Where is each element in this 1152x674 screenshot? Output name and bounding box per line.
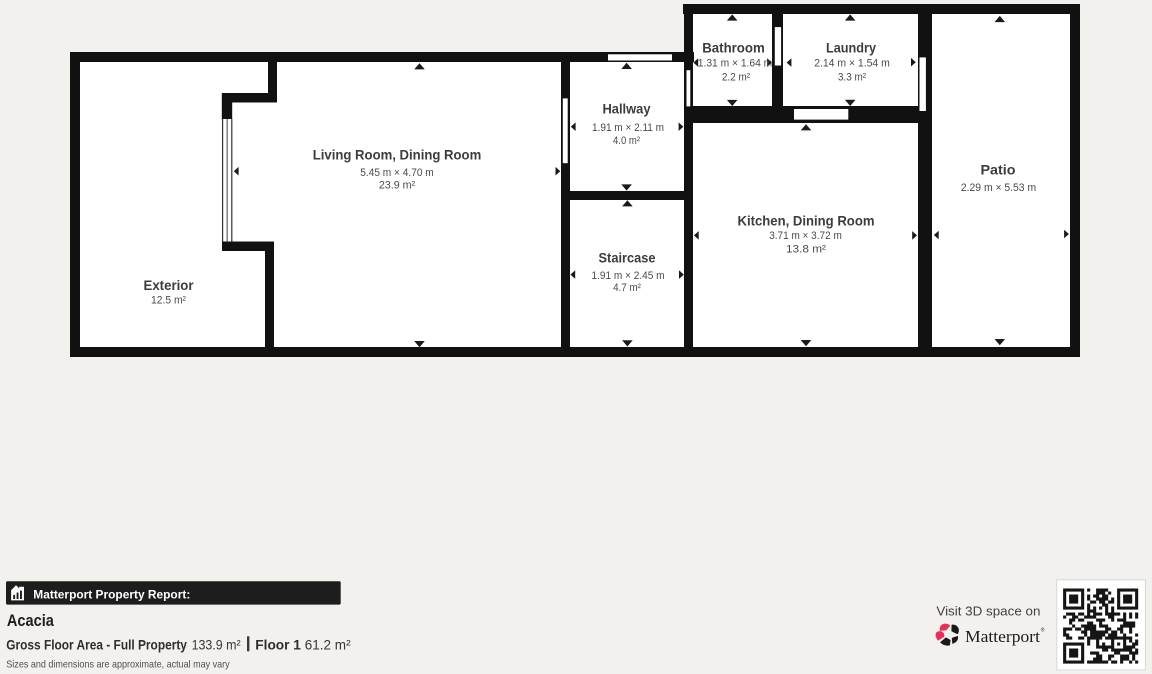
svg-text:Visit 3D space on: Visit 3D space on [936,604,1040,618]
svg-text:Matterport Property Report:: Matterport Property Report: [33,590,190,602]
svg-text:3.71 m × 3.72 m: 3.71 m × 3.72 m [769,230,842,242]
svg-text:12.5 m²: 12.5 m² [151,294,186,306]
svg-text:Patio: Patio [981,163,1016,178]
svg-text:1.91 m × 2.45 m: 1.91 m × 2.45 m [592,270,665,282]
svg-text:4.0 m²: 4.0 m² [613,135,640,147]
svg-text:1.91 m × 2.11 m: 1.91 m × 2.11 m [592,122,664,134]
svg-text:Kitchen, Dining Room: Kitchen, Dining Room [738,214,875,229]
svg-text:Matterport: Matterport [965,627,1040,646]
svg-text:5.45 m × 4.70 m: 5.45 m × 4.70 m [360,167,434,179]
svg-text:61.2 m²: 61.2 m² [305,636,351,652]
svg-text:®: ® [1041,627,1045,634]
svg-text:3.3 m²: 3.3 m² [838,72,866,84]
svg-text:13.8 m²: 13.8 m² [786,244,826,256]
svg-text:1.31 m × 1.64 m: 1.31 m × 1.64 m [698,57,773,69]
svg-text:Laundry: Laundry [826,41,876,56]
svg-text:Sizes and dimensions are appro: Sizes and dimensions are approximate, ac… [6,659,230,671]
svg-text:Acacia: Acacia [7,612,55,630]
svg-text:Staircase: Staircase [599,251,656,266]
svg-text:2.29 m × 5.53 m: 2.29 m × 5.53 m [961,182,1036,194]
svg-text:Gross Floor Area - Full Proper: Gross Floor Area - Full Property [6,636,187,652]
svg-text:Bathroom: Bathroom [702,41,765,56]
svg-text:Exterior: Exterior [144,278,195,293]
svg-text:2.2 m²: 2.2 m² [722,72,750,84]
svg-text:23.9 m²: 23.9 m² [379,179,415,191]
svg-text:2.14 m × 1.54 m: 2.14 m × 1.54 m [814,57,890,69]
svg-text:Floor 1: Floor 1 [255,636,301,652]
svg-text:133.9 m²: 133.9 m² [192,636,241,652]
svg-text:4.7 m²: 4.7 m² [613,282,641,294]
svg-text:Living Room, Dining Room: Living Room, Dining Room [313,148,482,163]
svg-text:Hallway: Hallway [603,102,651,117]
